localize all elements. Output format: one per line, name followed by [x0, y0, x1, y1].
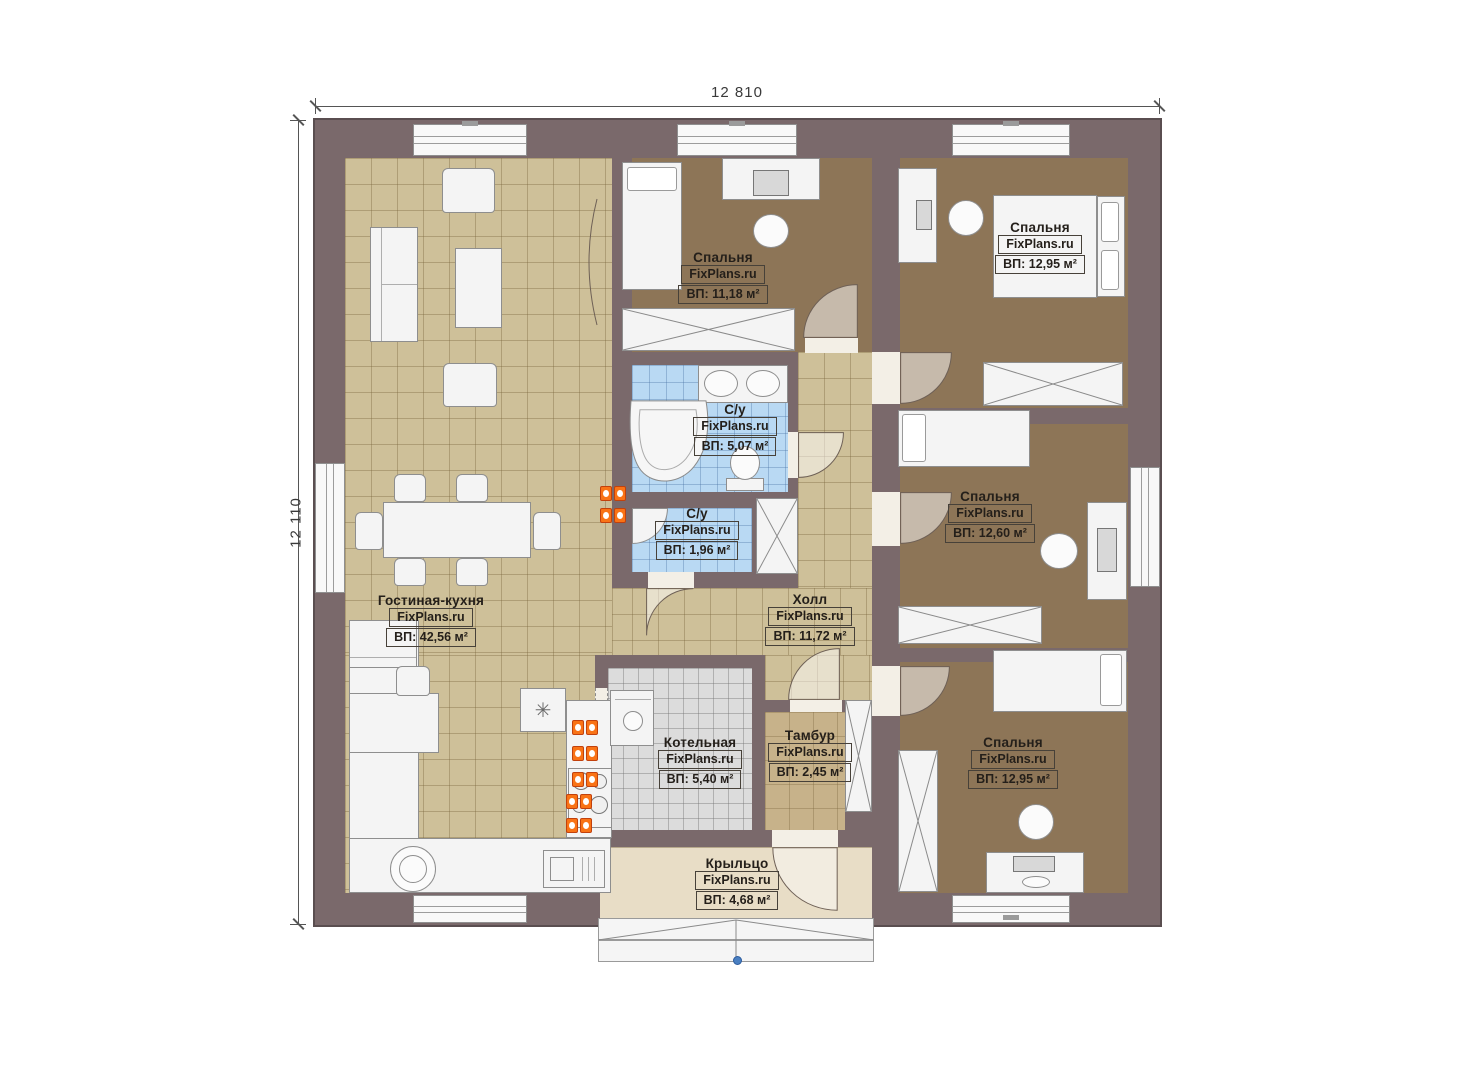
door-swing-bath-main: [798, 432, 844, 478]
room-name: С/у: [635, 506, 759, 521]
sofa: [370, 227, 418, 342]
brand-box: FixPlans.ru: [693, 417, 776, 436]
door-opening-bedroom-right: [872, 492, 900, 546]
area-box: ВП: 1,96 м²: [656, 541, 739, 560]
radiator-icon: [566, 818, 592, 833]
wardrobe: [983, 362, 1123, 406]
printer-icon: [1013, 856, 1055, 872]
monitor-icon: [916, 200, 932, 230]
window-kitchen-bottom: [413, 895, 527, 923]
dining-chair: [456, 558, 488, 586]
dimension-height-label: 12 110: [288, 463, 305, 583]
wardrobe: [898, 750, 938, 892]
area-box: ВП: 12,60 м²: [945, 524, 1035, 543]
brand-box: FixPlans.ru: [655, 521, 738, 540]
brand-box: FixPlans.ru: [998, 235, 1081, 254]
area-box: ВП: 12,95 м²: [968, 770, 1058, 789]
area-box: ВП: 11,72 м²: [765, 627, 854, 646]
brand-box: FixPlans.ru: [971, 750, 1054, 769]
door-swing-bedroom-top: [803, 284, 858, 338]
door-opening-bedroom-bottom-right: [872, 666, 900, 716]
room-label-living: Гостиная-кухня FixPlans.ru ВП: 42,56 м²: [350, 593, 512, 647]
room-name: Спальня: [643, 250, 803, 265]
oven: [543, 850, 605, 888]
kitchen-sink: [390, 846, 436, 892]
area-box: ВП: 12,95 м²: [995, 255, 1085, 274]
pillow: [1100, 654, 1122, 706]
room-label-bedroom-top: Спальня FixPlans.ru ВП: 11,18 м²: [643, 250, 803, 304]
stove-burner: [590, 796, 608, 814]
washbasin: [704, 370, 738, 397]
dining-chair: [533, 512, 561, 550]
dining-chair: [394, 474, 426, 502]
radiator-icon: [600, 508, 626, 523]
room-name: Гостиная-кухня: [350, 593, 512, 608]
radiator-icon: [600, 486, 626, 501]
dining-table: [383, 502, 531, 558]
room-label-hall: Холл FixPlans.ru ВП: 11,72 м²: [730, 592, 890, 646]
window-bedroom-right: [1130, 467, 1160, 587]
office-chair: [1018, 804, 1054, 840]
room-label-bedroom-top-right: Спальня FixPlans.ru ВП: 12,95 м²: [960, 220, 1120, 274]
coffee-table: [455, 248, 502, 328]
brand-box: FixPlans.ru: [681, 265, 764, 284]
room-name: Спальня: [933, 735, 1093, 750]
dining-chair: [394, 558, 426, 586]
room-label-bath-main: С/у FixPlans.ru ВП: 5,07 м²: [675, 402, 795, 456]
dimension-line-top: [315, 106, 1160, 107]
room-label-vestibule: Тамбур FixPlans.ru ВП: 2,45 м²: [745, 728, 875, 782]
wardrobe: [622, 308, 795, 351]
room-name: Спальня: [910, 489, 1070, 504]
pillow: [627, 167, 677, 191]
sliding-door-arc: [581, 198, 599, 326]
room-label-porch: Крыльцо FixPlans.ru ВП: 4,68 м²: [657, 856, 817, 910]
window-bedroom-top: [677, 124, 797, 156]
pillow: [902, 414, 926, 462]
range-hood-icon: ✳: [520, 688, 566, 732]
room-label-bath-small: С/у FixPlans.ru ВП: 1,96 м²: [635, 506, 759, 560]
radiator-icon: [572, 772, 598, 787]
kitchen-desk: [349, 693, 439, 753]
door-opening-bedroom-top-right: [872, 352, 900, 404]
window-vent-mark: [729, 121, 745, 126]
monitor-icon: [1097, 528, 1117, 572]
brand-box: FixPlans.ru: [768, 743, 851, 762]
door-opening-bath-small: [648, 572, 694, 588]
brand-box: FixPlans.ru: [695, 871, 778, 890]
kitchen-chair: [396, 666, 430, 696]
wardrobe: [898, 606, 1042, 644]
window-vent-mark: [1003, 915, 1019, 920]
radiator-icon: [572, 720, 598, 735]
door-opening-entrance: [772, 830, 838, 847]
dimension-width-label: 12 810: [657, 84, 817, 101]
desk-tray: [1022, 876, 1050, 888]
brand-box: FixPlans.ru: [768, 607, 851, 626]
window-bedroom-top-right: [952, 124, 1070, 156]
radiator-icon: [572, 746, 598, 761]
area-box: ВП: 5,07 м²: [694, 437, 777, 456]
area-box: ВП: 11,18 м²: [678, 285, 767, 304]
brand-box: FixPlans.ru: [389, 608, 472, 627]
door-opening-vestibule-hall: [790, 700, 842, 712]
door-swing-bedroom-bottom-right: [900, 666, 950, 716]
area-box: ВП: 4,68 м²: [696, 891, 779, 910]
door-swing-bedroom-top-right: [900, 352, 952, 404]
office-chair: [753, 214, 789, 248]
room-label-bedroom-bottom-right: Спальня FixPlans.ru ВП: 12,95 м²: [933, 735, 1093, 789]
door-swing-bath-small: [646, 588, 694, 636]
printer-icon: [753, 170, 789, 196]
armchair: [443, 363, 497, 407]
radiator-icon: [566, 794, 592, 809]
window-living-top: [413, 124, 527, 156]
door-swing-vestibule-hall: [788, 648, 840, 700]
survey-point-icon: [733, 956, 742, 965]
brand-box: FixPlans.ru: [948, 504, 1031, 523]
window-vent-mark: [462, 121, 478, 126]
room-name: Спальня: [960, 220, 1120, 235]
washbasin: [746, 370, 780, 397]
floor-plan: 12 810 12 110: [0, 0, 1474, 1080]
room-name: Крыльцо: [657, 856, 817, 871]
wardrobe: [756, 498, 798, 574]
area-box: ВП: 5,40 м²: [659, 770, 742, 789]
area-box: ВП: 2,45 м²: [769, 763, 852, 782]
window-living-left: [315, 463, 345, 593]
dining-chair: [456, 474, 488, 502]
living-hall-opening: [612, 588, 632, 655]
room-name: Тамбур: [745, 728, 875, 743]
area-box: ВП: 42,56 м²: [386, 628, 476, 647]
room-name: С/у: [675, 402, 795, 417]
brand-box: FixPlans.ru: [658, 750, 741, 769]
dining-chair: [355, 512, 383, 550]
door-opening-bedroom-top: [805, 338, 858, 353]
armchair: [442, 168, 495, 213]
window-vent-mark: [1003, 121, 1019, 126]
room-name: Холл: [730, 592, 890, 607]
room-label-bedroom-right: Спальня FixPlans.ru ВП: 12,60 м²: [910, 489, 1070, 543]
